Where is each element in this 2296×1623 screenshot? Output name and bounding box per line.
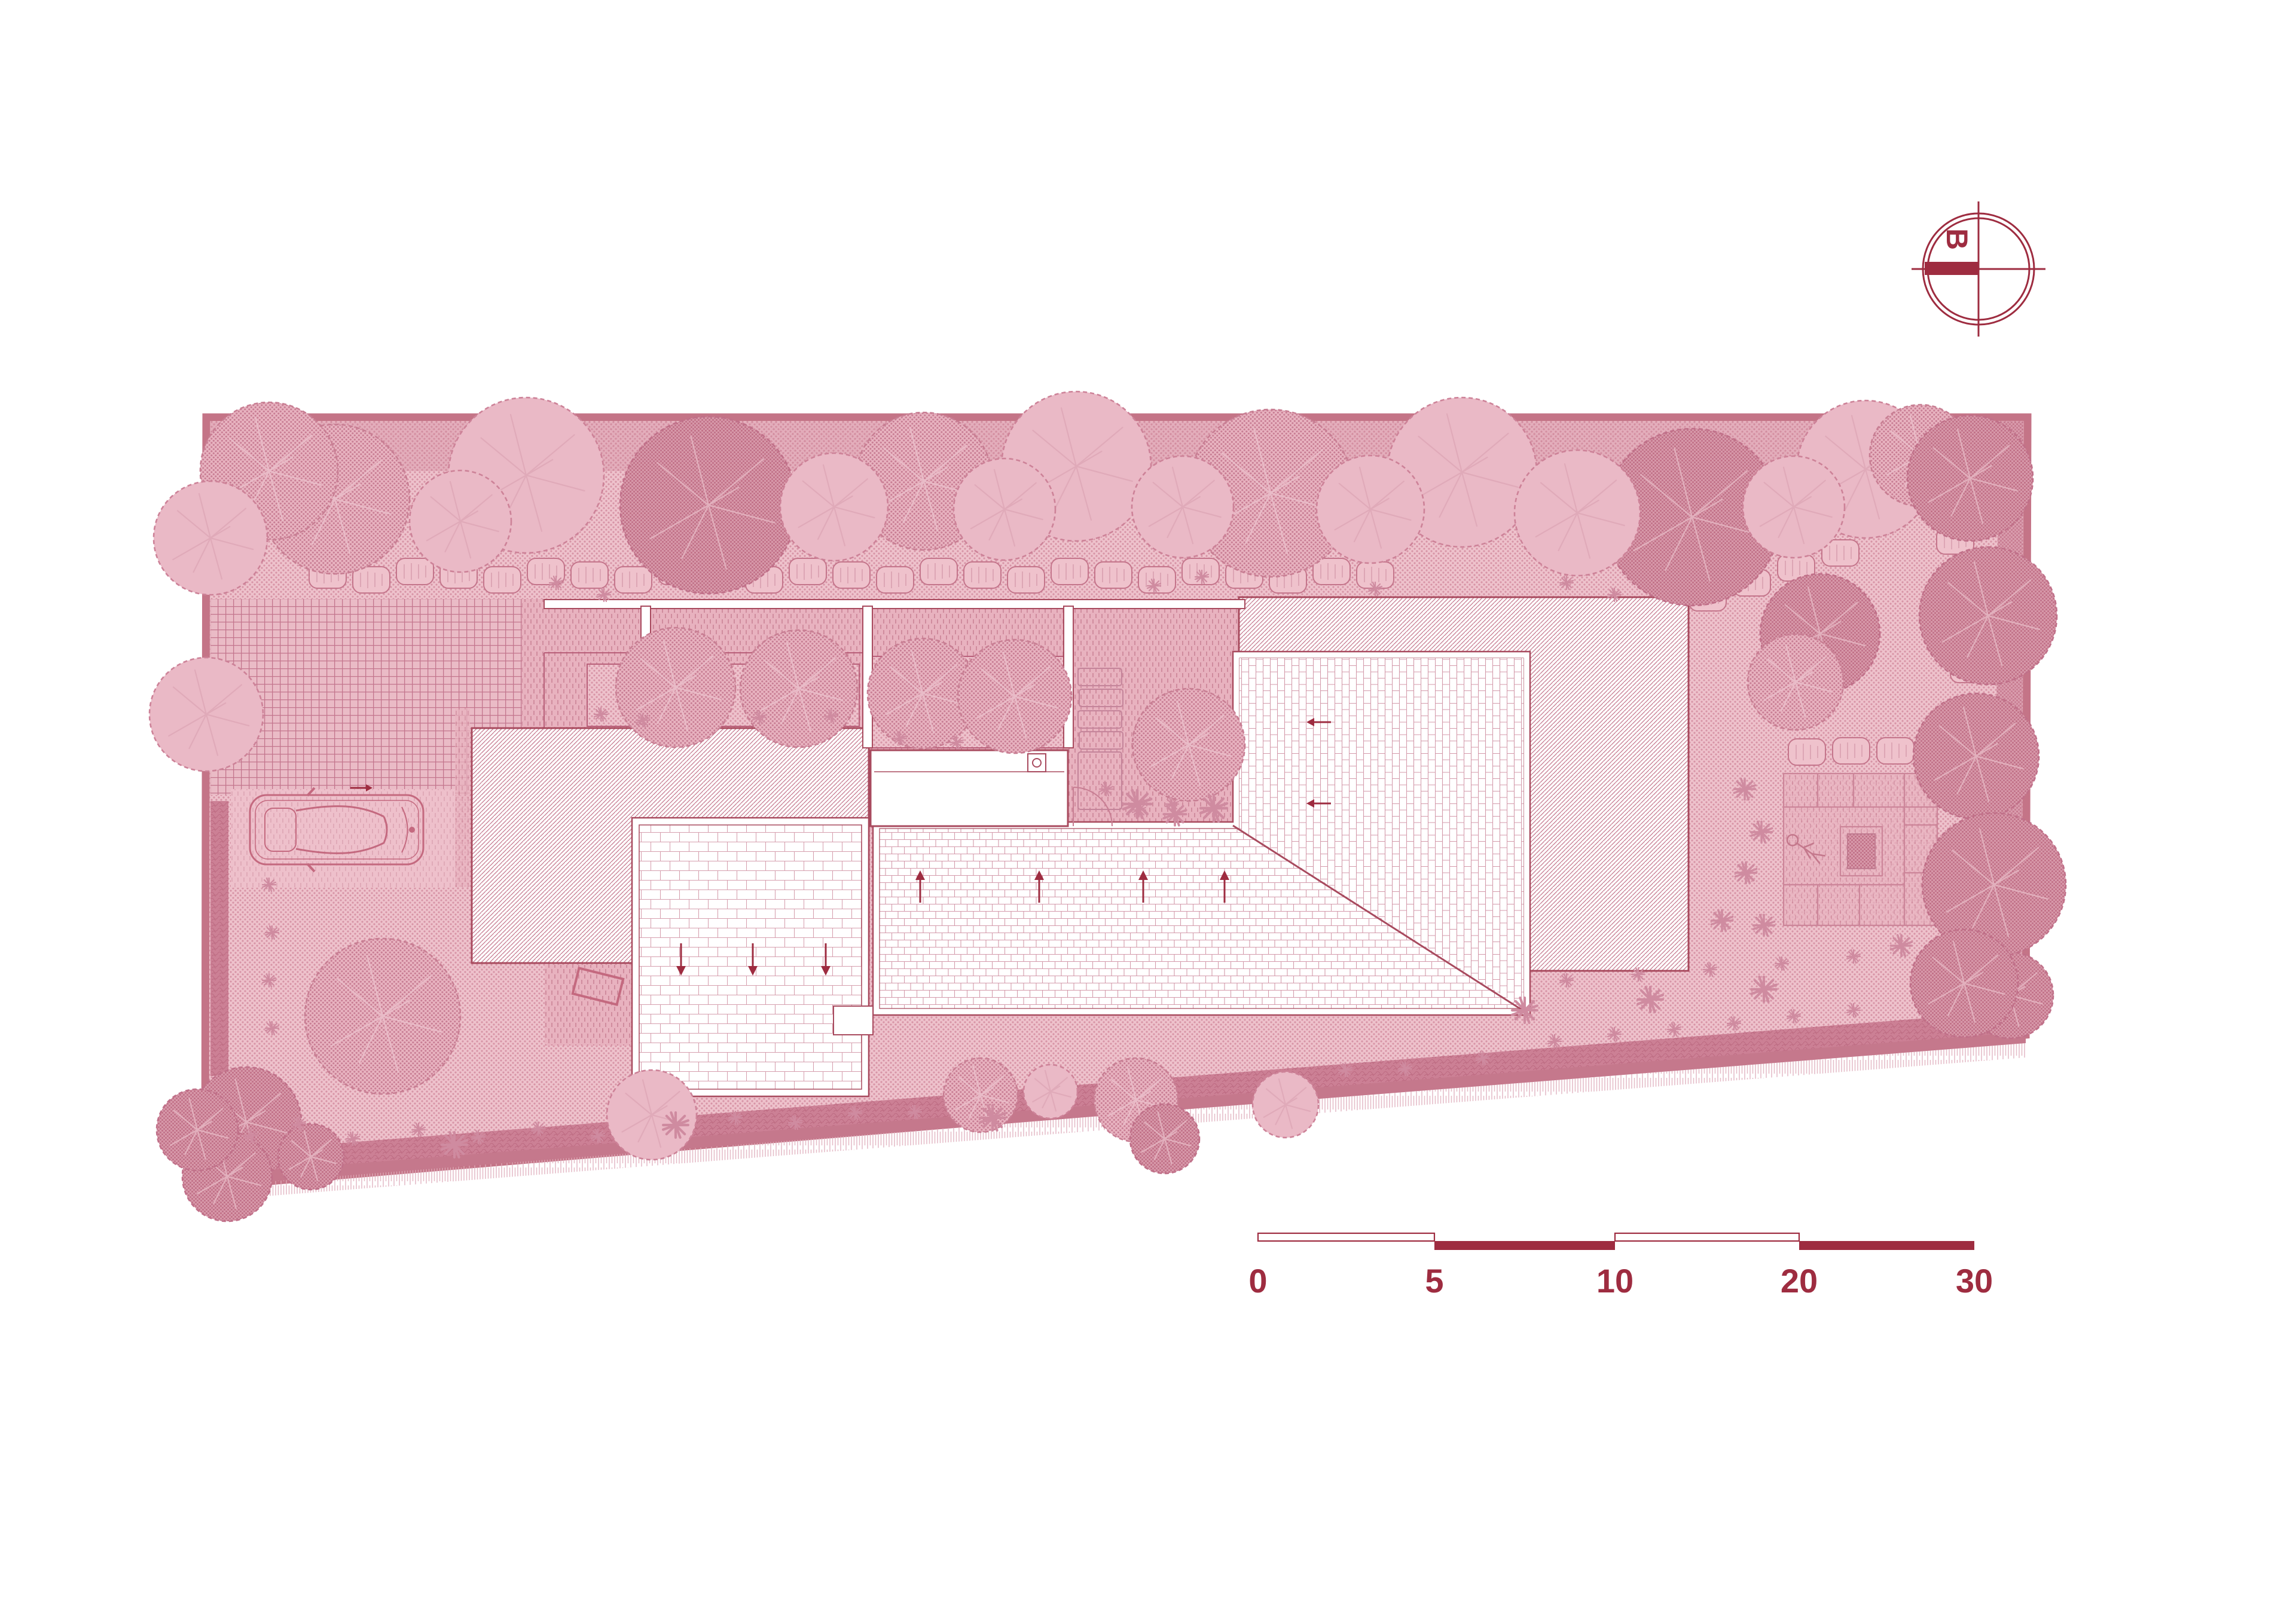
- svg-text:30: 30: [1956, 1262, 1993, 1300]
- svg-text:5: 5: [1425, 1262, 1443, 1300]
- svg-text:B: B: [1940, 228, 1974, 250]
- svg-text:20: 20: [1781, 1262, 1818, 1300]
- svg-text:0: 0: [1248, 1262, 1267, 1300]
- svg-text:10: 10: [1596, 1262, 1634, 1300]
